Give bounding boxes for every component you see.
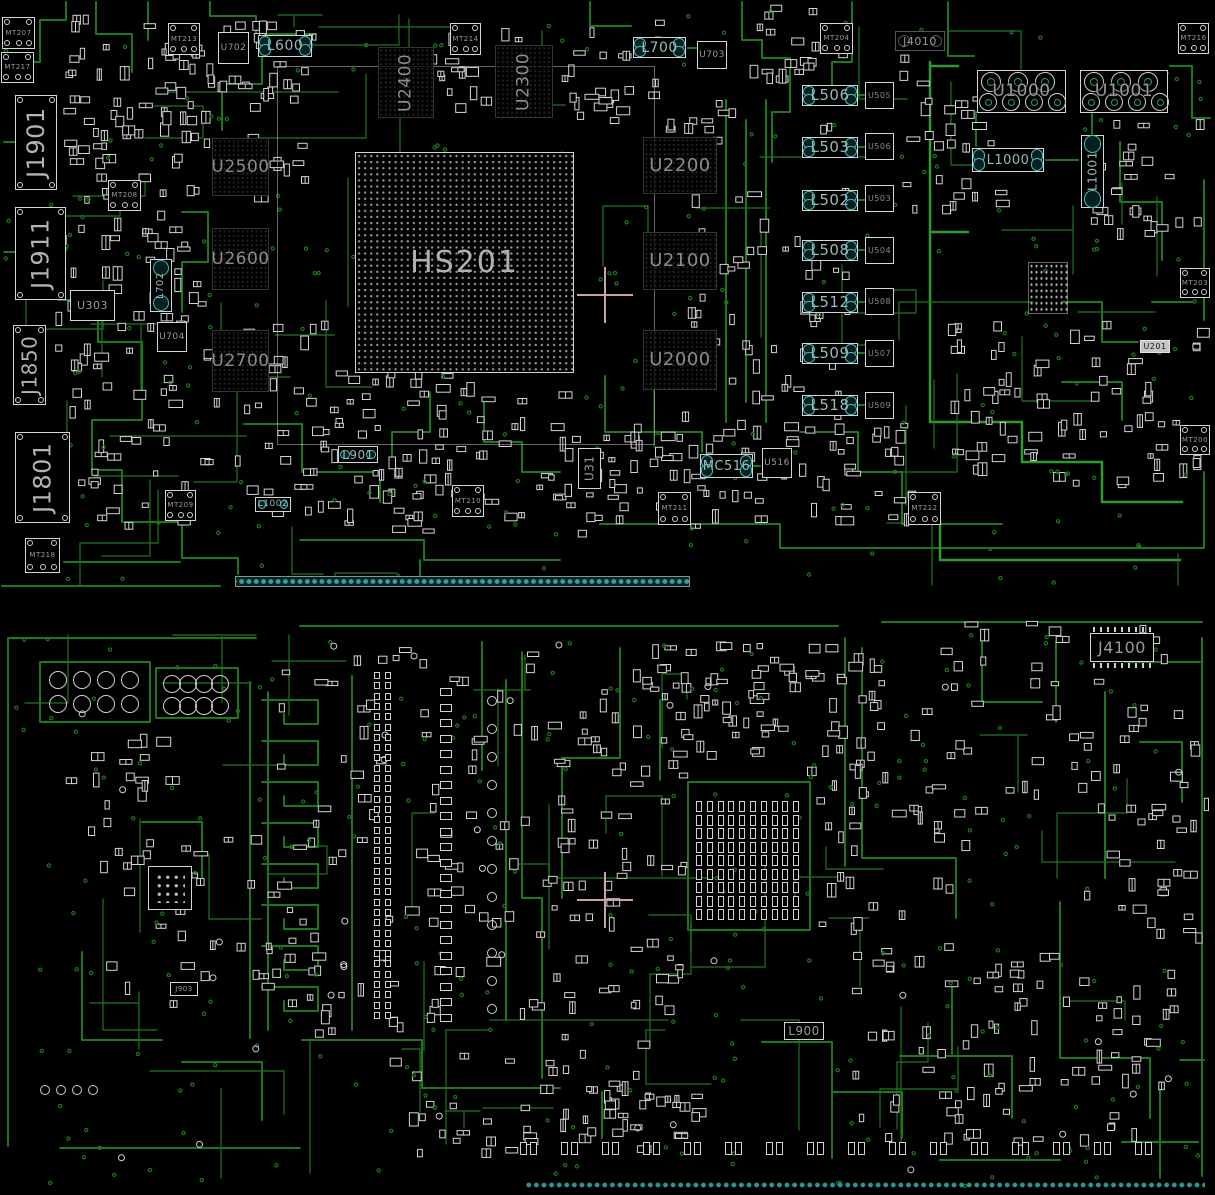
pin-hole xyxy=(62,515,68,521)
pad xyxy=(643,1142,650,1155)
cap-pad xyxy=(750,869,756,880)
pad xyxy=(374,713,380,720)
cap-pad xyxy=(772,855,778,866)
pad xyxy=(440,1014,452,1022)
ic-body xyxy=(865,133,894,160)
pad-circle xyxy=(211,675,229,693)
part-u507[interactable]: U507 xyxy=(865,340,894,367)
pad xyxy=(385,816,391,823)
part-j1911[interactable]: J1911 xyxy=(15,207,66,300)
inductor-pad xyxy=(845,249,856,260)
pad xyxy=(385,878,391,885)
part-mt214[interactable]: MT214 xyxy=(450,23,481,55)
pad xyxy=(571,1142,578,1155)
part-mt204[interactable]: MT204 xyxy=(820,23,853,54)
pad xyxy=(612,1142,619,1155)
pad-circle xyxy=(121,671,139,689)
pad xyxy=(374,940,380,947)
inductor-pad xyxy=(366,450,375,459)
part-l503[interactable]: L503 xyxy=(802,137,858,158)
cap-pad xyxy=(793,869,799,880)
cap-pad xyxy=(707,882,713,893)
mount-hole xyxy=(660,516,666,522)
part-l509[interactable]: L509 xyxy=(802,343,858,364)
mount-hole xyxy=(1200,45,1206,51)
pad-circle xyxy=(930,35,942,47)
crosshair-v xyxy=(604,872,606,928)
part-padcol-2 xyxy=(440,688,452,1029)
connector-outline xyxy=(13,325,46,405)
connector-outline xyxy=(15,207,66,300)
part-u201[interactable]: U201 xyxy=(1140,340,1170,353)
pad xyxy=(1104,1142,1111,1155)
pad xyxy=(440,874,452,882)
mount-hole xyxy=(191,46,197,52)
mount-hole xyxy=(3,54,9,60)
cap-pad xyxy=(772,828,778,839)
pad xyxy=(1094,1142,1101,1155)
pad xyxy=(374,847,380,854)
pad xyxy=(385,960,391,967)
pin-hole xyxy=(62,434,68,440)
inductor-pad xyxy=(803,199,814,210)
pad xyxy=(653,1142,660,1155)
cap-pad xyxy=(718,828,724,839)
part-mt216[interactable]: MT216 xyxy=(1178,23,1209,54)
inductor-pad xyxy=(845,404,856,415)
pin-hole xyxy=(58,292,64,298)
pad xyxy=(385,991,391,998)
pad-circle xyxy=(211,697,229,715)
part-u516[interactable]: U516 xyxy=(762,448,792,478)
pad xyxy=(848,1142,855,1155)
mount-hole xyxy=(26,40,32,46)
pad xyxy=(440,983,452,991)
ic-body xyxy=(865,288,894,315)
cap-pad xyxy=(696,855,702,866)
pad xyxy=(385,693,391,700)
pad xyxy=(374,765,380,772)
inductor-pad xyxy=(845,199,856,210)
pin-hole xyxy=(15,327,21,333)
cap-pad xyxy=(782,869,788,880)
pad xyxy=(440,859,452,867)
cap-pad xyxy=(696,828,702,839)
pad-circle xyxy=(1008,99,1015,106)
pad xyxy=(374,796,380,803)
part-j1801[interactable]: J1801 xyxy=(15,432,70,523)
part-u1000[interactable]: U1000 xyxy=(977,70,1066,113)
mount-hole xyxy=(110,182,116,188)
mount-hole xyxy=(475,508,481,514)
pad xyxy=(440,766,452,774)
part-l700[interactable]: L700 xyxy=(633,37,686,58)
pad xyxy=(971,1142,978,1155)
pin-ticks xyxy=(1093,663,1151,668)
part-u31[interactable]: U31 xyxy=(578,448,601,489)
inductor-pad xyxy=(634,46,645,57)
cap-pad xyxy=(728,909,734,920)
connector-outline xyxy=(15,432,70,523)
mount-hole xyxy=(170,25,176,31)
pad xyxy=(776,1142,783,1155)
cap-pad xyxy=(772,909,778,920)
inductor-pad xyxy=(803,249,814,260)
pad-circle xyxy=(487,752,497,762)
cap-pad xyxy=(750,801,756,812)
pad-circle xyxy=(73,671,91,689)
part-j4010[interactable]: J4010 xyxy=(895,31,945,51)
pad xyxy=(694,1142,701,1155)
part-u703[interactable]: U703 xyxy=(697,41,727,69)
cap-pad xyxy=(772,896,778,907)
cap-pad xyxy=(793,855,799,866)
cap-pad xyxy=(728,882,734,893)
mount-hole xyxy=(472,25,478,31)
part-l600[interactable]: L600 xyxy=(258,35,312,57)
cap-pad xyxy=(772,801,778,812)
cap-pad xyxy=(728,869,734,880)
pad-circle xyxy=(487,920,497,930)
mount-hole xyxy=(167,492,173,498)
part-mt210[interactable]: MT210 xyxy=(452,485,484,517)
cap-pad xyxy=(750,828,756,839)
pad xyxy=(374,827,380,834)
inductor-pad xyxy=(803,94,814,105)
cap-pad xyxy=(707,828,713,839)
pad xyxy=(385,868,391,875)
mount-hole xyxy=(452,46,458,52)
mount-hole xyxy=(27,540,33,546)
part-l1001[interactable]: L1001 xyxy=(1081,135,1104,208)
pad xyxy=(940,1142,947,1155)
cap-pad xyxy=(782,828,788,839)
pad-circle xyxy=(487,892,497,902)
pad xyxy=(385,1012,391,1019)
pad-circle xyxy=(73,695,91,713)
part-qfn-u[interactable] xyxy=(148,866,192,910)
cap-pad xyxy=(728,815,734,826)
cap-pad xyxy=(707,815,713,826)
cap-pad xyxy=(761,869,767,880)
pad xyxy=(385,672,391,679)
pad xyxy=(440,688,452,696)
mount-hole xyxy=(167,512,173,518)
part-mt218[interactable]: MT218 xyxy=(25,538,60,573)
connector-body xyxy=(1090,633,1154,662)
cap-pad xyxy=(793,909,799,920)
mount-hole xyxy=(475,487,481,493)
mount-hole xyxy=(110,202,116,208)
part-l900[interactable]: L900 xyxy=(784,1022,824,1040)
pad-circle xyxy=(1111,99,1118,106)
mount-hole xyxy=(1182,289,1188,295)
pad xyxy=(374,971,380,978)
part-dot-block xyxy=(1028,262,1068,314)
mount-hole xyxy=(465,508,471,514)
part-l512[interactable]: L512 xyxy=(802,292,858,313)
pad xyxy=(374,919,380,926)
part-mt217[interactable]: MT217 xyxy=(1,52,34,83)
mount-hole xyxy=(1182,270,1188,276)
pad xyxy=(374,785,380,792)
ic-body xyxy=(697,41,727,69)
mount-hole xyxy=(1201,427,1207,433)
cap-pad xyxy=(696,842,702,853)
cap-pad xyxy=(718,896,724,907)
cap-pad xyxy=(750,842,756,853)
pad xyxy=(1135,1142,1142,1155)
mount-hole xyxy=(178,512,184,518)
inductor-pad xyxy=(673,46,684,57)
mount-hole xyxy=(122,202,128,208)
part-u503[interactable]: U503 xyxy=(865,185,894,212)
part-holes-b xyxy=(160,672,232,718)
pad xyxy=(374,816,380,823)
mount-hole xyxy=(1182,427,1188,433)
mount-hole xyxy=(40,564,46,570)
pad xyxy=(374,909,380,916)
pad-circle xyxy=(1031,99,1038,106)
mount-hole xyxy=(844,45,850,51)
pad-circle xyxy=(1088,99,1095,106)
ic-body xyxy=(157,322,187,352)
cap-pad xyxy=(739,896,745,907)
pad xyxy=(385,806,391,813)
part-u506[interactable]: U506 xyxy=(865,133,894,160)
pad-circle xyxy=(97,671,115,689)
cap-pad xyxy=(761,815,767,826)
pad-circle xyxy=(487,1004,497,1014)
cap-pad xyxy=(782,882,788,893)
label-tag xyxy=(170,982,198,996)
pad-circle xyxy=(487,780,497,790)
pad xyxy=(374,888,380,895)
part-l702[interactable]: L702 xyxy=(150,259,172,312)
pad xyxy=(374,775,380,782)
cap-pad xyxy=(728,828,734,839)
pad xyxy=(385,775,391,782)
pad xyxy=(385,713,391,720)
pad xyxy=(385,888,391,895)
memory-chip-body xyxy=(212,228,269,290)
pad xyxy=(385,940,391,947)
pad-circle xyxy=(487,948,497,958)
pcb-boardview: MT207MT217MT213U702L600MT214U2400U2300L7… xyxy=(0,0,1215,1195)
pin-ticks xyxy=(1093,627,1151,632)
inductor-pad xyxy=(803,146,814,157)
part-u504[interactable]: U504 xyxy=(865,237,894,264)
pad xyxy=(374,960,380,967)
part-l1002[interactable]: L1002 xyxy=(255,497,291,512)
cap-pad xyxy=(782,815,788,826)
pad xyxy=(374,857,380,864)
cap-pad xyxy=(696,801,702,812)
part-l518[interactable]: L518 xyxy=(802,395,858,416)
cap-pad xyxy=(750,815,756,826)
pad xyxy=(440,750,452,758)
pad-circle xyxy=(487,696,497,706)
pad xyxy=(684,1142,691,1155)
pad-circle xyxy=(987,78,995,86)
pad xyxy=(440,905,452,913)
inductor-pad xyxy=(1084,135,1101,152)
part-mt211[interactable]: MT211 xyxy=(658,492,691,525)
pad xyxy=(766,1142,773,1155)
cap-pad xyxy=(761,896,767,907)
part-u2700[interactable]: U2700 xyxy=(212,330,269,392)
pad xyxy=(385,919,391,926)
ic-body xyxy=(70,290,115,321)
part-u509[interactable]: U509 xyxy=(865,392,894,419)
ic-body xyxy=(218,32,249,64)
pad xyxy=(530,1142,537,1155)
part-mt208[interactable]: MT208 xyxy=(108,180,141,211)
pad xyxy=(981,1142,988,1155)
pad-circle xyxy=(49,695,67,713)
part-mt209[interactable]: MT209 xyxy=(165,490,196,521)
mount-hole xyxy=(672,516,678,522)
part-u1001[interactable]: U1001 xyxy=(1080,70,1168,113)
pad xyxy=(374,703,380,710)
cap-pad xyxy=(772,842,778,853)
pad xyxy=(374,682,380,689)
connector-outline xyxy=(15,95,57,190)
part-l502[interactable]: L502 xyxy=(802,190,858,211)
mount-hole xyxy=(170,46,176,52)
pad-circle xyxy=(97,695,115,713)
pad xyxy=(385,1002,391,1009)
cap-pad xyxy=(718,815,724,826)
part-u702[interactable]: U702 xyxy=(218,32,249,64)
ic-body xyxy=(578,448,601,489)
part-l1000[interactable]: L1000 xyxy=(972,148,1044,172)
pad-circle xyxy=(487,864,497,874)
pad xyxy=(374,878,380,885)
cap-pad xyxy=(761,882,767,893)
inductor-pad xyxy=(280,500,288,508)
mount-hole xyxy=(910,494,916,500)
pad xyxy=(374,806,380,813)
pad-circle xyxy=(1054,99,1061,106)
mount-hole xyxy=(454,508,460,514)
cap-pad xyxy=(707,801,713,812)
part-j1901[interactable]: J1901 xyxy=(15,95,57,190)
inductor-pad xyxy=(845,146,856,157)
mount-hole xyxy=(454,487,460,493)
cap-pad xyxy=(696,882,702,893)
pad xyxy=(725,1142,732,1155)
part-u704[interactable]: U704 xyxy=(157,322,187,352)
part-u508b[interactable]: U508 xyxy=(865,288,894,315)
part-edge-strip-top xyxy=(235,576,690,587)
part-mt200[interactable]: MT200 xyxy=(1180,425,1210,455)
pad xyxy=(440,998,452,1006)
pad xyxy=(385,950,391,957)
part-j1850[interactable]: J1850 xyxy=(13,325,46,405)
cap-pad xyxy=(696,909,702,920)
part-edge-strip-bottom xyxy=(525,1179,1205,1191)
part-l508[interactable]: L508 xyxy=(802,240,858,261)
pad xyxy=(735,1142,742,1155)
part-j4100[interactable]: J4100 xyxy=(1090,633,1154,662)
pad xyxy=(374,693,380,700)
pad xyxy=(385,682,391,689)
mount-hole xyxy=(822,25,828,31)
pad xyxy=(385,744,391,751)
part-j903[interactable]: J903 xyxy=(170,982,198,996)
cap-pad xyxy=(707,869,713,880)
cap-pad xyxy=(793,882,799,893)
part-mt213[interactable]: MT213 xyxy=(168,23,200,55)
pad xyxy=(858,1142,865,1155)
pad xyxy=(385,796,391,803)
pad xyxy=(374,899,380,906)
cap-pad xyxy=(728,842,734,853)
cap-pad xyxy=(707,842,713,853)
cap-pad xyxy=(761,801,767,812)
cap-pad xyxy=(761,855,767,866)
mount-hole xyxy=(25,54,31,60)
part-l901[interactable]: L901 xyxy=(338,446,378,463)
cap-pad xyxy=(750,896,756,907)
ic-body xyxy=(865,237,894,264)
part-mc516[interactable]: MC516 xyxy=(700,454,753,478)
mount-hole xyxy=(1192,289,1198,295)
pad xyxy=(561,1142,568,1155)
cap-pad xyxy=(696,815,702,826)
mount-hole xyxy=(922,516,928,522)
part-holes-a xyxy=(46,668,142,716)
cap-pad xyxy=(739,842,745,853)
mount-hole xyxy=(834,45,840,51)
pad xyxy=(440,828,452,836)
part-l506[interactable]: L506 xyxy=(802,85,858,106)
pad-circle xyxy=(487,836,497,846)
pad xyxy=(440,781,452,789)
ic-body xyxy=(865,392,894,419)
part-u2600[interactable]: U2600 xyxy=(212,228,269,290)
mount-hole xyxy=(187,512,193,518)
cap-pad xyxy=(718,882,724,893)
part-mt207[interactable]: MT207 xyxy=(2,17,35,49)
cap-pad xyxy=(772,815,778,826)
part-u505[interactable]: U505 xyxy=(865,82,894,109)
pin-hole xyxy=(38,327,44,333)
cap-pad xyxy=(793,842,799,853)
part-u2500[interactable]: U2500 xyxy=(212,138,269,196)
pad xyxy=(374,868,380,875)
mount-hole xyxy=(1191,45,1197,51)
part-padcol-1 xyxy=(374,672,392,1022)
pad xyxy=(1145,1142,1152,1155)
part-mt203[interactable]: MT203 xyxy=(1180,268,1210,298)
ic-body xyxy=(865,82,894,109)
mount-hole xyxy=(181,46,187,52)
cap-pad xyxy=(782,855,788,866)
memory-chip-body xyxy=(212,138,269,196)
part-u303[interactable]: U303 xyxy=(70,290,115,321)
part-mt212[interactable]: MT212 xyxy=(908,492,941,525)
pin-hole xyxy=(49,97,55,103)
pad-circle xyxy=(88,1085,98,1095)
mount-hole xyxy=(51,564,57,570)
pad xyxy=(374,837,380,844)
cap-pad xyxy=(707,896,713,907)
mount-hole xyxy=(682,494,688,500)
cap-pad xyxy=(782,842,788,853)
cap-pad xyxy=(739,801,745,812)
